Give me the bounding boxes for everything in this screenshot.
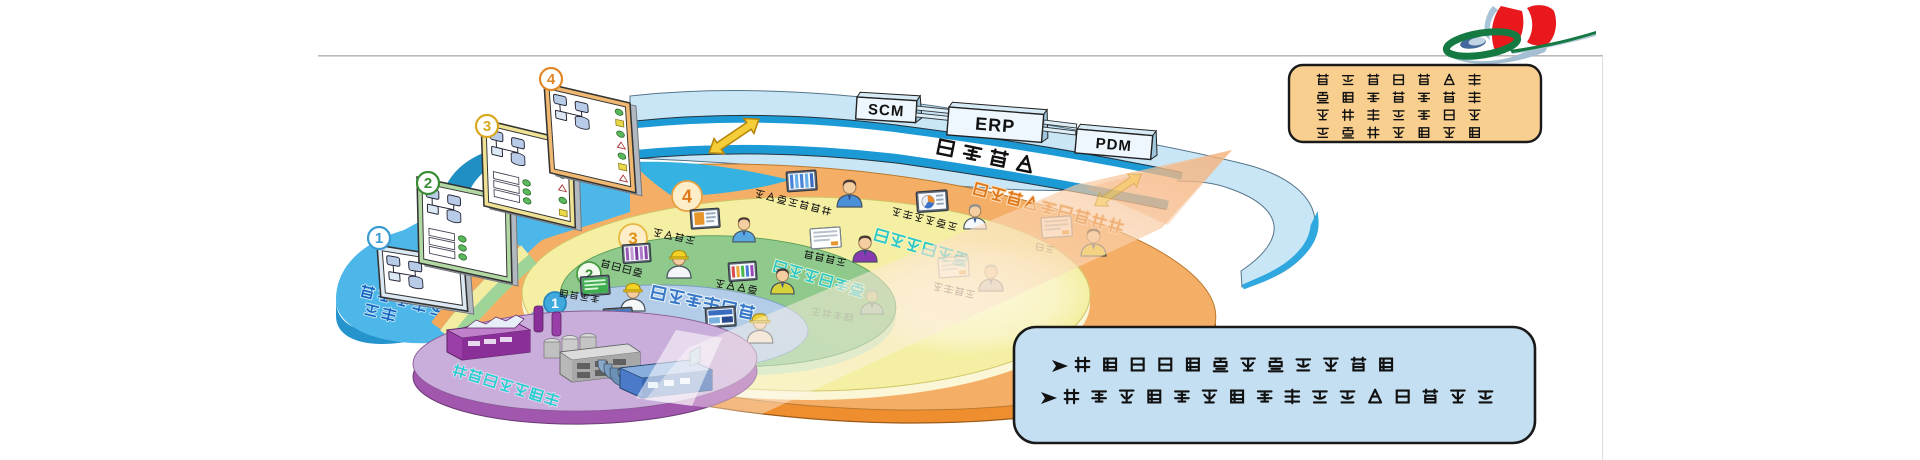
svg-text:4: 4 bbox=[682, 186, 692, 206]
svg-text:1: 1 bbox=[375, 230, 383, 247]
svg-text:3: 3 bbox=[483, 118, 491, 135]
svg-text:SCM: SCM bbox=[868, 101, 905, 120]
svg-text:ERP: ERP bbox=[974, 114, 1015, 137]
svg-text:4: 4 bbox=[547, 71, 556, 88]
svg-text:PDM: PDM bbox=[1095, 135, 1133, 155]
svg-text:2: 2 bbox=[424, 175, 432, 192]
svg-text:1: 1 bbox=[551, 295, 559, 311]
